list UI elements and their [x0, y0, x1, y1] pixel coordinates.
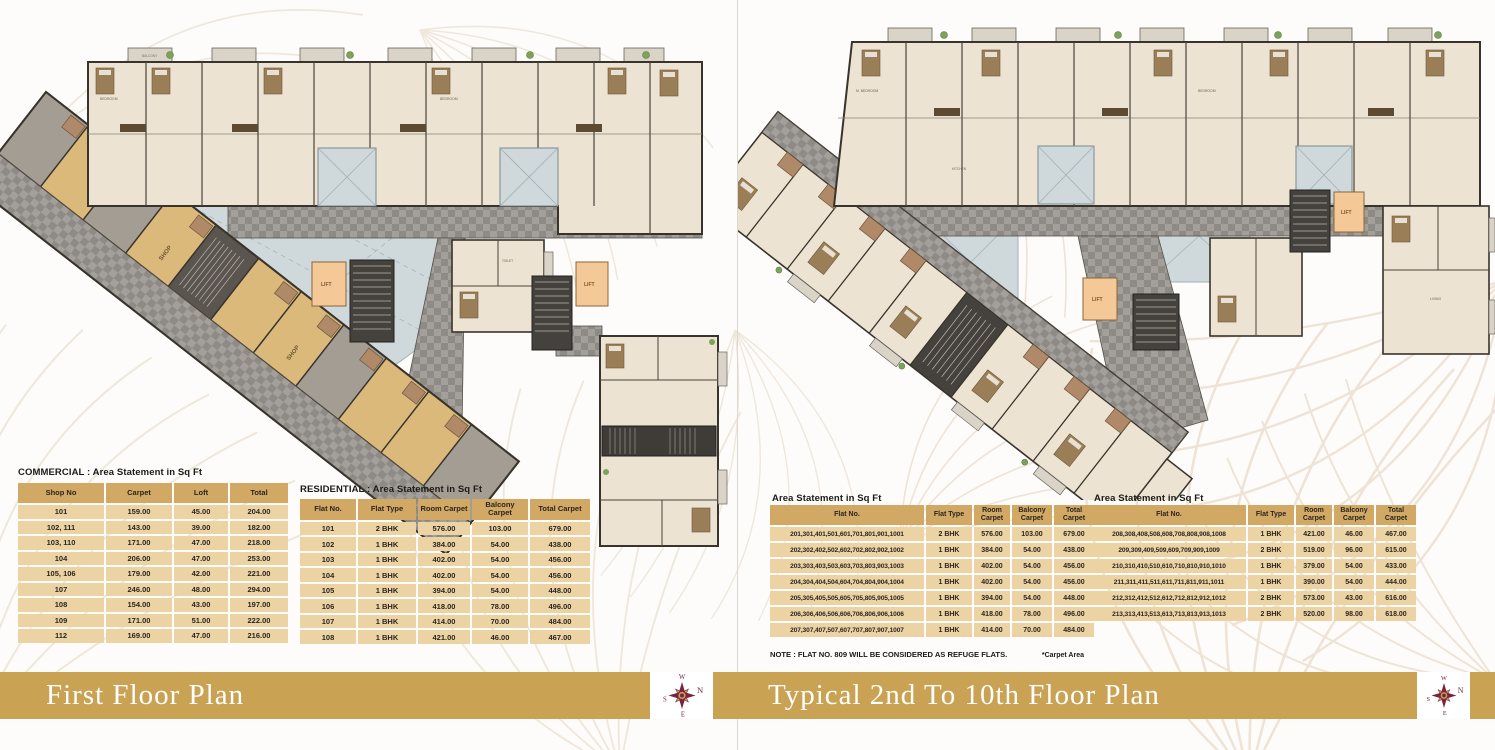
- table-cell: 2 BHK: [358, 522, 416, 536]
- table-cell: 47.00: [174, 552, 228, 566]
- residential-area-table: Flat No.Flat TypeRoom CarpetBalcony Carp…: [298, 497, 592, 646]
- table-row: 1081 BHK421.0046.00467.00: [300, 630, 590, 644]
- table-cell: 54.00: [1012, 575, 1052, 589]
- table-cell: 222.00: [230, 614, 288, 628]
- table-cell: 104: [300, 568, 356, 582]
- table-cell: 390.00: [1296, 575, 1332, 589]
- column-header: Total Carpet: [1376, 505, 1416, 525]
- table-row: 109171.0051.00222.00: [18, 614, 288, 628]
- commercial-table-title: COMMERCIAL : Area Statement in Sq Ft: [18, 467, 202, 478]
- column-header: Room Carpet: [1296, 505, 1332, 525]
- table-cell: 54.00: [1334, 559, 1374, 573]
- table-cell: 101: [18, 505, 104, 519]
- compass-east-label: E: [1442, 710, 1446, 717]
- header-row: Flat No.Flat TypeRoom CarpetBalcony Carp…: [300, 499, 590, 520]
- table-cell: 1 BHK: [926, 543, 972, 557]
- table-cell: 112: [18, 629, 104, 643]
- table-row: 201,301,401,501,601,701,801,901,10012 BH…: [770, 527, 1094, 541]
- table-cell: 78.00: [1012, 607, 1052, 621]
- table-cell: 103: [300, 553, 356, 567]
- table-cell: 444.00: [1376, 575, 1416, 589]
- table-row: 210,310,410,510,610,710,810,910,10101 BH…: [1092, 559, 1416, 573]
- table-cell: 438.00: [1054, 543, 1094, 557]
- residential-table-title: RESIDENTIAL : Area Statement in Sq Ft: [300, 484, 482, 495]
- table-cell: 218.00: [230, 536, 288, 550]
- detached-flat-block: [600, 336, 727, 546]
- table-cell: 197.00: [230, 598, 288, 612]
- table-cell: 54.00: [1012, 543, 1052, 557]
- table-cell: 159.00: [106, 505, 172, 519]
- table-cell: 402.00: [418, 553, 470, 567]
- table-cell: 456.00: [1054, 575, 1094, 589]
- table-cell: 204.00: [230, 505, 288, 519]
- table-cell: 520.00: [1296, 607, 1332, 621]
- compass-west-label: W: [1441, 675, 1447, 682]
- column-header: Balcony Carpet: [1012, 505, 1052, 525]
- lift-label: LIFT: [1092, 297, 1103, 303]
- balcony-row: [128, 48, 664, 62]
- table-cell: 216.00: [230, 629, 288, 643]
- column-header: Flat Type: [1248, 505, 1294, 525]
- table-row: 208,308,408,508,608,708,808,908,10081 BH…: [1092, 527, 1416, 541]
- table-cell: 1 BHK: [358, 599, 416, 613]
- table-row: 204,304,404,504,604,704,804,904,10041 BH…: [770, 575, 1094, 589]
- column-header: Balcony Carpet: [472, 499, 528, 520]
- table-row: 103, 110171.0047.00218.00: [18, 536, 288, 550]
- table-cell: 54.00: [1012, 559, 1052, 573]
- table-cell: 1 BHK: [926, 591, 972, 605]
- table-cell: 47.00: [174, 536, 228, 550]
- table-cell: 294.00: [230, 583, 288, 597]
- table-cell: 201,301,401,501,601,701,801,901,1001: [770, 527, 924, 541]
- table-row: 209,309,409,509,609,709,909,10092 BHK519…: [1092, 543, 1416, 557]
- table-cell: 1 BHK: [926, 607, 972, 621]
- table-row: 1051 BHK394.0054.00448.00: [300, 584, 590, 598]
- table-cell: 448.00: [530, 584, 590, 598]
- table-cell: 418.00: [418, 599, 470, 613]
- header-row: Flat No.Flat TypeRoom CarpetBalcony Carp…: [1092, 505, 1416, 525]
- table-cell: 1 BHK: [358, 630, 416, 644]
- table-row: 1012 BHK576.00103.00679.00: [300, 522, 590, 536]
- table-row: 205,305,405,505,605,705,805,905,10051 BH…: [770, 591, 1094, 605]
- table-cell: 384.00: [974, 543, 1010, 557]
- refuge-flat-note: NOTE : FLAT NO. 809 WILL BE CONSIDERED A…: [770, 650, 1007, 659]
- table-cell: 211,311,411,511,611,711,811,911,1011: [1092, 575, 1246, 589]
- table-cell: 573.00: [1296, 591, 1332, 605]
- column-header: Total Carpet: [1054, 505, 1094, 525]
- balcony-row: [888, 28, 1432, 42]
- commercial-area-table: Shop NoCarpetLoftTotal 101159.0045.00204…: [16, 481, 290, 645]
- table-cell: 418.00: [974, 607, 1010, 621]
- table-cell: 456.00: [1054, 559, 1094, 573]
- table-cell: 414.00: [418, 615, 470, 629]
- table-cell: 496.00: [530, 599, 590, 613]
- typical-floor-plan-title-bar: Typical 2nd To 10th Floor Plan: [713, 672, 1417, 719]
- table-row: 104206.0047.00253.00: [18, 552, 288, 566]
- column-header: Total: [230, 483, 288, 503]
- table-cell: 213,313,413,513,613,713,813,913,1013: [1092, 607, 1246, 621]
- column-header: Shop No: [18, 483, 104, 503]
- table-cell: 1 BHK: [1248, 575, 1294, 589]
- table-cell: 679.00: [1054, 527, 1094, 541]
- table-cell: 438.00: [530, 537, 590, 551]
- table-cell: 1 BHK: [926, 575, 972, 589]
- table-row: 1061 BHK418.0078.00496.00: [300, 599, 590, 613]
- compass-icon: W N E S: [1419, 672, 1469, 719]
- table-cell: 70.00: [472, 615, 528, 629]
- brochure-page: SHOP SHOP: [0, 0, 1495, 750]
- table-row: 1021 BHK384.0054.00438.00: [300, 537, 590, 551]
- room-label: BALCONY: [142, 54, 158, 58]
- table-row: 108154.0043.00197.00: [18, 598, 288, 612]
- table-cell: 105: [300, 584, 356, 598]
- table-cell: 108: [300, 630, 356, 644]
- table-cell: 394.00: [418, 584, 470, 598]
- table-cell: 103.00: [1012, 527, 1052, 541]
- table-row: 203,303,403,503,603,703,803,903,10031 BH…: [770, 559, 1094, 573]
- table-cell: 203,303,403,503,603,703,803,903,1003: [770, 559, 924, 573]
- table-cell: 1 BHK: [358, 537, 416, 551]
- table-cell: 246.00: [106, 583, 172, 597]
- column-header: Balcony Carpet: [1334, 505, 1374, 525]
- table-cell: 496.00: [1054, 607, 1094, 621]
- gold-bar-stub: [1470, 672, 1495, 719]
- table-cell: 576.00: [974, 527, 1010, 541]
- first-floor-plan-title-bar: First Floor Plan: [0, 672, 650, 719]
- header-row: Flat No.Flat TypeRoom CarpetBalcony Carp…: [770, 505, 1094, 525]
- table-cell: 1 BHK: [1248, 527, 1294, 541]
- column-header: Room Carpet: [974, 505, 1010, 525]
- table-cell: 402.00: [418, 568, 470, 582]
- table-cell: 104: [18, 552, 104, 566]
- table-cell: 207,307,407,507,607,707,807,907,1007: [770, 623, 924, 637]
- table-cell: 103.00: [472, 522, 528, 536]
- table-cell: 107: [300, 615, 356, 629]
- table-cell: 456.00: [530, 553, 590, 567]
- table-cell: 43.00: [174, 598, 228, 612]
- compass-west-label: W: [678, 674, 685, 681]
- table-cell: 70.00: [1012, 623, 1052, 637]
- table-cell: 2 BHK: [1248, 591, 1294, 605]
- column-header: Total Carpet: [530, 499, 590, 520]
- column-header: Carpet: [106, 483, 172, 503]
- table-cell: 421.00: [1296, 527, 1332, 541]
- table-row: 206,306,406,506,606,706,806,906,10061 BH…: [770, 607, 1094, 621]
- table-cell: 448.00: [1054, 591, 1094, 605]
- table-cell: 204,304,404,504,604,704,804,904,1004: [770, 575, 924, 589]
- lift-label: LIFT: [321, 282, 332, 288]
- table-cell: 615.00: [1376, 543, 1416, 557]
- room-label: BEDROOM: [100, 97, 118, 101]
- table-cell: 679.00: [530, 522, 590, 536]
- compass-box-right: W N E S: [1417, 672, 1470, 719]
- table-cell: 210,310,410,510,610,710,810,910,1010: [1092, 559, 1246, 573]
- table-row: 212,312,412,512,612,712,812,912,10122 BH…: [1092, 591, 1416, 605]
- table-cell: 205,305,405,505,605,705,805,905,1005: [770, 591, 924, 605]
- room-label: M. BEDROOM: [856, 89, 878, 93]
- table-cell: 221.00: [230, 567, 288, 581]
- table-cell: 39.00: [174, 521, 228, 535]
- compass-icon: W N E S: [654, 672, 710, 719]
- table-cell: 379.00: [1296, 559, 1332, 573]
- table-cell: 2 BHK: [1248, 607, 1294, 621]
- compass-east-label: E: [680, 712, 684, 719]
- typical-floor-area-table-b: Flat No.Flat TypeRoom CarpetBalcony Carp…: [1090, 503, 1418, 623]
- column-header: Flat Type: [358, 499, 416, 520]
- compass-south-label: S: [1426, 696, 1430, 703]
- table-cell: 103, 110: [18, 536, 104, 550]
- table-row: 1031 BHK402.0054.00456.00: [300, 553, 590, 567]
- column-header: Flat No.: [1092, 505, 1246, 525]
- lift-label: LIFT: [1341, 210, 1352, 216]
- table-cell: 421.00: [418, 630, 470, 644]
- table-cell: 43.00: [1334, 591, 1374, 605]
- room-label: BEDROOM: [440, 97, 458, 101]
- table-row: 207,307,407,507,607,707,807,907,10071 BH…: [770, 623, 1094, 637]
- table-cell: 212,312,412,512,612,712,812,912,1012: [1092, 591, 1246, 605]
- column-header: Room Carpet: [418, 499, 470, 520]
- compass-north-label: N: [1457, 686, 1463, 695]
- table-cell: 182.00: [230, 521, 288, 535]
- table-cell: 467.00: [530, 630, 590, 644]
- table-row: 101159.0045.00204.00: [18, 505, 288, 519]
- top-apartments-wing: BEDROOM BEDROOM BALCONY: [88, 48, 702, 234]
- table-cell: 101: [300, 522, 356, 536]
- table-row: 1071 BHK414.0070.00484.00: [300, 615, 590, 629]
- column-header: Loft: [174, 483, 228, 503]
- first-floor-plan-title: First Floor Plan: [0, 672, 650, 719]
- table-cell: 202,302,402,502,602,702,802,902,1002: [770, 543, 924, 557]
- table-cell: 46.00: [1334, 527, 1374, 541]
- room-label: BEDROOM: [1198, 89, 1216, 93]
- table-cell: 1 BHK: [358, 615, 416, 629]
- table-row: 202,302,402,502,602,702,802,902,10021 BH…: [770, 543, 1094, 557]
- table-cell: 179.00: [106, 567, 172, 581]
- table-cell: 1 BHK: [358, 568, 416, 582]
- table-cell: 2 BHK: [1248, 543, 1294, 557]
- table-cell: 2 BHK: [926, 527, 972, 541]
- table-cell: 105, 106: [18, 567, 104, 581]
- table-cell: 1 BHK: [926, 623, 972, 637]
- table-cell: 209,309,409,509,609,709,909,1009: [1092, 543, 1246, 557]
- table-cell: 54.00: [472, 553, 528, 567]
- table-cell: 206,306,406,506,606,706,806,906,1006: [770, 607, 924, 621]
- table-cell: 206.00: [106, 552, 172, 566]
- table-cell: 1 BHK: [358, 553, 416, 567]
- column-header: Flat No.: [770, 505, 924, 525]
- table-cell: 1 BHK: [358, 584, 416, 598]
- table-cell: 98.00: [1334, 607, 1374, 621]
- table-cell: 618.00: [1376, 607, 1416, 621]
- table-cell: 154.00: [106, 598, 172, 612]
- table-cell: 519.00: [1296, 543, 1332, 557]
- table-row: 102, 111143.0039.00182.00: [18, 521, 288, 535]
- table-cell: 96.00: [1334, 543, 1374, 557]
- table-cell: 402.00: [974, 559, 1010, 573]
- table-cell: 208,308,408,508,608,708,808,908,1008: [1092, 527, 1246, 541]
- table-cell: 402.00: [974, 575, 1010, 589]
- table-cell: 171.00: [106, 614, 172, 628]
- header-row: Shop NoCarpetLoftTotal: [18, 483, 288, 503]
- table-row: 107246.0048.00294.00: [18, 583, 288, 597]
- table-cell: 46.00: [472, 630, 528, 644]
- table-row: 1041 BHK402.0054.00456.00: [300, 568, 590, 582]
- table-cell: 456.00: [530, 568, 590, 582]
- table-cell: 54.00: [472, 537, 528, 551]
- table-cell: 108: [18, 598, 104, 612]
- table-row: 213,313,413,513,613,713,813,913,10132 BH…: [1092, 607, 1416, 621]
- typical-floor-area-table-a: Flat No.Flat TypeRoom CarpetBalcony Carp…: [768, 503, 1096, 639]
- table-cell: 171.00: [106, 536, 172, 550]
- table-cell: 48.00: [174, 583, 228, 597]
- lift-label: LIFT: [584, 282, 595, 288]
- table-cell: 47.00: [174, 629, 228, 643]
- table-cell: 54.00: [472, 584, 528, 598]
- room-label: TOILET: [502, 259, 513, 263]
- typical-floor-plan-title: Typical 2nd To 10th Floor Plan: [713, 672, 1417, 719]
- table-cell: 1 BHK: [926, 559, 972, 573]
- table-cell: 576.00: [418, 522, 470, 536]
- table-row: 112169.0047.00216.00: [18, 629, 288, 643]
- table-cell: 78.00: [472, 599, 528, 613]
- table-cell: 394.00: [974, 591, 1010, 605]
- table-cell: 616.00: [1376, 591, 1416, 605]
- table-cell: 54.00: [1334, 575, 1374, 589]
- table-cell: 106: [300, 599, 356, 613]
- table-cell: 467.00: [1376, 527, 1416, 541]
- table-cell: 169.00: [106, 629, 172, 643]
- top-apartments-wing: M. BEDROOM BEDROOM KITCHEN: [834, 28, 1480, 206]
- compass-box-left: W N E S: [650, 672, 713, 719]
- table-cell: 484.00: [1054, 623, 1094, 637]
- table-cell: 45.00: [174, 505, 228, 519]
- table-cell: 253.00: [230, 552, 288, 566]
- table-cell: 54.00: [1012, 591, 1052, 605]
- table-cell: 143.00: [106, 521, 172, 535]
- table-cell: 54.00: [472, 568, 528, 582]
- room-label: KITCHEN: [952, 167, 967, 171]
- table-cell: 484.00: [530, 615, 590, 629]
- table-cell: 51.00: [174, 614, 228, 628]
- table-row: 105, 106179.0042.00221.00: [18, 567, 288, 581]
- table-cell: 109: [18, 614, 104, 628]
- table-cell: 384.00: [418, 537, 470, 551]
- table-cell: 107: [18, 583, 104, 597]
- room-label: LIVING: [1430, 297, 1441, 301]
- table-cell: 1 BHK: [1248, 559, 1294, 573]
- table-cell: 433.00: [1376, 559, 1416, 573]
- table-cell: 414.00: [974, 623, 1010, 637]
- compass-south-label: S: [662, 696, 666, 703]
- carpet-area-note: *Carpet Area: [1042, 652, 1084, 659]
- table-cell: 102, 111: [18, 521, 104, 535]
- table-cell: 102: [300, 537, 356, 551]
- refuge-flat-note-row: NOTE : FLAT NO. 809 WILL BE CONSIDERED A…: [770, 650, 1084, 659]
- table-cell: 42.00: [174, 567, 228, 581]
- table-row: 211,311,411,511,611,711,811,911,10111 BH…: [1092, 575, 1416, 589]
- typical-floor-plan-drawing: M. BEDROOM BEDROOM KITCHEN LIVING: [738, 0, 1495, 500]
- column-header: Flat Type: [926, 505, 972, 525]
- compass-north-label: N: [696, 685, 702, 695]
- column-header: Flat No.: [300, 499, 356, 520]
